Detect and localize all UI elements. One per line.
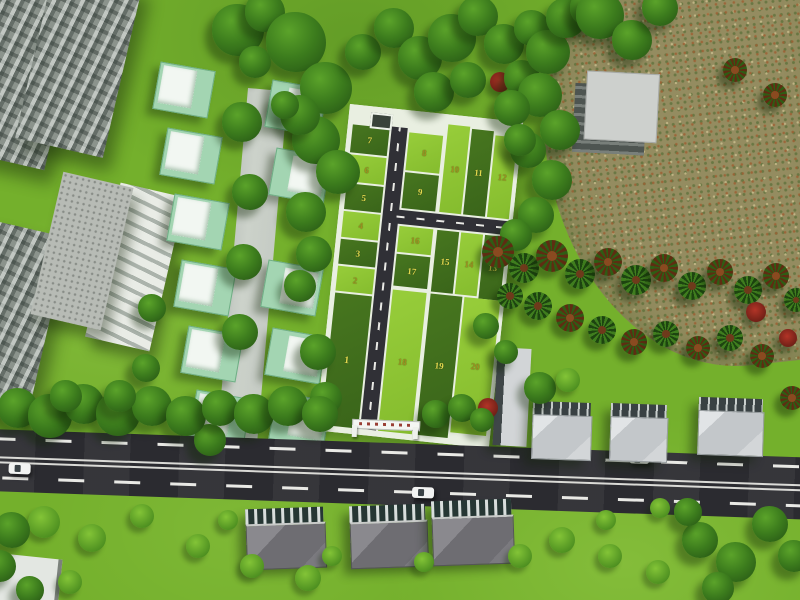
- red-palm-tree: [594, 248, 622, 276]
- bush: [650, 498, 670, 518]
- bush: [218, 510, 238, 530]
- tree: [450, 62, 486, 98]
- red-palm-tree: [556, 304, 584, 332]
- building-roof: [584, 71, 660, 144]
- tree: [222, 102, 262, 142]
- tree: [138, 294, 166, 322]
- plot-number: 4: [358, 221, 364, 231]
- palm-tree: [565, 259, 595, 289]
- red-palm-tree: [763, 83, 787, 107]
- tree: [540, 110, 580, 150]
- plot-number: 10: [450, 164, 460, 175]
- tree: [166, 396, 206, 436]
- red-palm-tree: [780, 386, 800, 410]
- villa-roof: [165, 131, 205, 174]
- flowering-tree: [746, 302, 766, 322]
- tree: [222, 314, 258, 350]
- plot-number: 3: [355, 248, 361, 258]
- tree: [494, 90, 530, 126]
- tree: [286, 192, 326, 232]
- palm-tree: [509, 253, 539, 283]
- red-palm-tree: [536, 240, 568, 272]
- plot-number: 2: [352, 275, 358, 285]
- plot-17: 17: [393, 254, 430, 289]
- tree: [473, 313, 499, 339]
- entrance-gate-sign: [352, 419, 419, 439]
- tree: [532, 160, 572, 200]
- bush: [646, 560, 670, 584]
- tree: [302, 396, 338, 432]
- flowering-tree: [779, 329, 797, 347]
- plot-4: 4: [341, 211, 381, 241]
- red-palm-tree: [621, 329, 647, 355]
- bush: [295, 565, 321, 591]
- bush: [596, 510, 616, 530]
- plot-number: 18: [397, 356, 407, 367]
- palm-tree: [678, 272, 706, 300]
- tree: [232, 174, 268, 210]
- plot-number: 15: [440, 256, 450, 267]
- plot-8: 8: [405, 132, 443, 173]
- red-palm-tree: [723, 58, 747, 82]
- building-roof: [531, 414, 593, 461]
- palm-tree: [717, 325, 743, 351]
- south-building: [431, 499, 513, 564]
- bush: [58, 570, 82, 594]
- plot-16: 16: [397, 226, 434, 255]
- roadside-building: [531, 401, 591, 459]
- plot-number: 12: [497, 172, 507, 183]
- plot-number: 11: [474, 167, 484, 178]
- plot-number: 17: [407, 266, 417, 277]
- villa: [152, 62, 215, 119]
- car: [412, 487, 434, 499]
- utility-structure: [370, 112, 394, 130]
- northeast-building: [572, 70, 658, 156]
- tree: [300, 334, 336, 370]
- tree: [239, 46, 271, 78]
- tree: [470, 408, 494, 432]
- gate-banner: [352, 419, 420, 431]
- palm-tree: [734, 276, 762, 304]
- palm-tree: [621, 265, 651, 295]
- tree: [296, 236, 332, 272]
- villa-roof: [172, 197, 212, 240]
- bush: [508, 544, 532, 568]
- tree: [271, 91, 299, 119]
- tree: [422, 400, 450, 428]
- plot-number: 19: [434, 360, 444, 371]
- building-roof: [697, 410, 765, 457]
- red-palm-tree: [763, 263, 789, 289]
- bush: [414, 552, 434, 572]
- tree: [682, 522, 718, 558]
- plot-number: 14: [464, 259, 474, 270]
- plot-number: 8: [422, 148, 428, 158]
- plot-number: 16: [410, 235, 420, 246]
- tree: [702, 572, 734, 600]
- palm-tree: [524, 292, 552, 320]
- tree: [345, 34, 381, 70]
- villa-roof: [179, 263, 219, 306]
- plot-9: 9: [401, 172, 439, 211]
- tree: [226, 244, 262, 280]
- bush: [549, 527, 575, 553]
- building-roof: [609, 416, 669, 463]
- tree: [414, 72, 454, 112]
- tree: [202, 390, 238, 426]
- palm-tree: [653, 321, 679, 347]
- bush: [130, 504, 154, 528]
- plot-number: 5: [361, 193, 367, 203]
- bush: [78, 524, 106, 552]
- bush: [28, 506, 60, 538]
- car: [8, 463, 30, 475]
- roadside-building: [697, 397, 763, 455]
- plot-number: 6: [364, 164, 370, 174]
- villa: [166, 194, 229, 251]
- plot-number: 7: [367, 135, 373, 145]
- villa-roof: [186, 329, 226, 372]
- gate-post: [352, 425, 357, 437]
- bush: [598, 544, 622, 568]
- plot-number: 1: [344, 355, 350, 366]
- tree: [104, 380, 136, 412]
- tree: [752, 506, 788, 542]
- tree: [524, 372, 556, 404]
- tree: [132, 354, 160, 382]
- building-roof: [432, 515, 516, 567]
- bush: [186, 534, 210, 558]
- bush: [240, 554, 264, 578]
- site-layout-aerial-render: 7 6 5 4 3 2 1 8 9 10 11 12 16 17 15 14 1…: [0, 0, 800, 600]
- red-palm-tree: [650, 254, 678, 282]
- tree: [504, 124, 536, 156]
- tree: [284, 270, 316, 302]
- plot-2: 2: [335, 266, 374, 295]
- bush: [556, 368, 580, 392]
- plot-number: 20: [470, 361, 480, 372]
- center-line: [0, 461, 800, 492]
- tree: [16, 576, 44, 600]
- villa-roof: [158, 65, 198, 108]
- red-palm-tree: [686, 336, 710, 360]
- plot-3: 3: [338, 239, 377, 268]
- tree: [612, 20, 652, 60]
- roadside-building: [609, 403, 667, 461]
- palm-tree: [588, 316, 616, 344]
- tree: [50, 380, 82, 412]
- tree: [494, 340, 518, 364]
- villa: [159, 128, 222, 185]
- red-palm-tree: [707, 259, 733, 285]
- plot-number: 9: [417, 187, 423, 197]
- bush: [322, 546, 342, 566]
- palm-tree: [497, 283, 523, 309]
- tree: [674, 498, 702, 526]
- tree: [316, 150, 360, 194]
- gate-post: [413, 427, 418, 439]
- red-palm-tree: [750, 344, 774, 368]
